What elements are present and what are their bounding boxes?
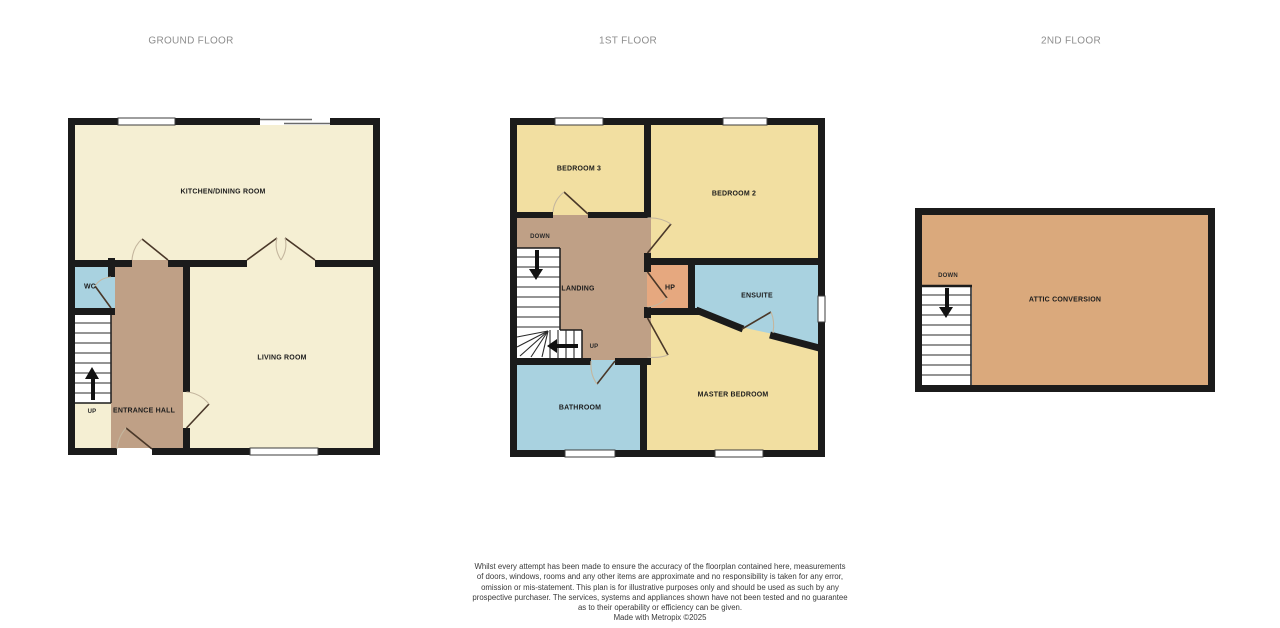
window	[565, 450, 615, 457]
room-label-bedroom-3: BEDROOM 3	[557, 166, 601, 173]
room-label-hp: HP	[665, 285, 675, 292]
disclaimer: Whilst every attempt has been made to en…	[400, 562, 920, 624]
window	[555, 118, 603, 125]
window	[118, 118, 175, 125]
room-label-living-room: LIVING ROOM	[257, 355, 306, 362]
room-entrance-hall-fill	[111, 260, 183, 448]
stairs-down-label: DOWN	[530, 234, 550, 240]
room-label-wc: WC	[84, 284, 96, 291]
room-label-bedroom-2: BEDROOM 2	[712, 191, 756, 198]
room-label-master-bedroom: MASTER BEDROOM	[698, 392, 769, 399]
room-label-bathroom: BATHROOM	[559, 405, 601, 412]
window	[250, 448, 318, 455]
room-label-ensuite: ENSUITE	[741, 293, 773, 300]
disclaimer-line: omission or mis-statement. This plan is …	[400, 583, 920, 593]
room-label-landing: LANDING	[561, 286, 594, 293]
stairs-up-label: UP	[88, 409, 97, 415]
window	[818, 296, 825, 322]
wall-opening	[260, 118, 330, 125]
floor-title-first: 1ST FLOOR	[599, 36, 657, 47]
disclaimer-line: of doors, windows, rooms and any other i…	[400, 572, 920, 582]
room-label-attic-conversion: ATTIC CONVERSION	[1029, 297, 1101, 304]
window	[715, 450, 763, 457]
floor-title-second: 2ND FLOOR	[1041, 36, 1101, 47]
disclaimer-line: as to their operability or efficiency ca…	[400, 603, 920, 613]
disclaimer-line: Whilst every attempt has been made to en…	[400, 562, 920, 572]
window	[723, 118, 767, 125]
floor-title-ground: GROUND FLOOR	[148, 36, 233, 47]
ground-floor-plan	[68, 118, 380, 455]
floorplan-drawing	[0, 0, 1280, 628]
disclaimer-made-with: Made with Metropix ©2025	[400, 613, 920, 623]
room-label-entrance-hall: ENTRANCE HALL	[113, 408, 175, 415]
stairs-down-label: DOWN	[938, 273, 958, 279]
stairs-up-label: UP	[590, 344, 599, 350]
disclaimer-line: prospective purchaser. The services, sys…	[400, 593, 920, 603]
floorplan-page: GROUND FLOOR 1ST FLOOR 2ND FLOOR KITCHEN…	[0, 0, 1280, 628]
room-label-kitchen-dining: KITCHEN/DINING ROOM	[180, 189, 265, 196]
